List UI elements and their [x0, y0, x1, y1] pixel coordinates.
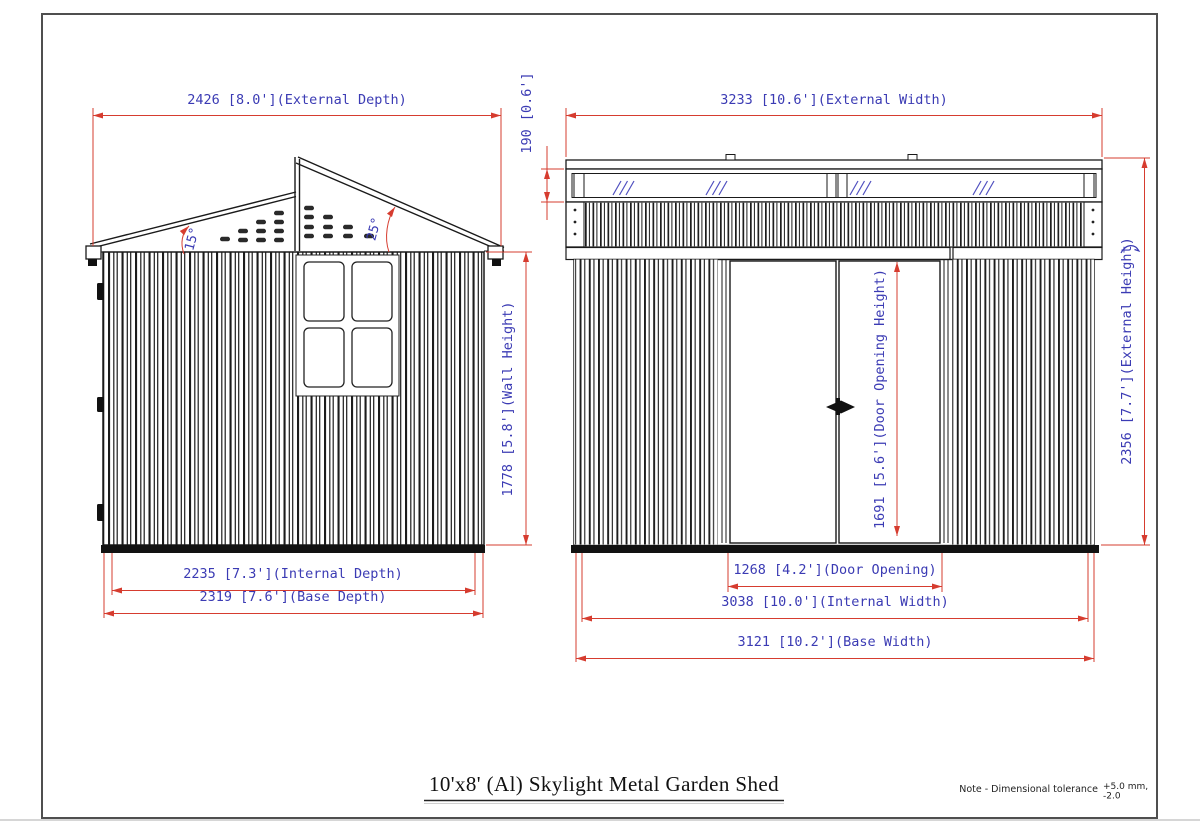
window-pane [352, 328, 392, 387]
door-leaf-right [839, 261, 940, 543]
dim-label-door-opening-width: 1268 [4.2'](Door Opening) [733, 562, 936, 578]
skylight-band [566, 169, 1102, 202]
window-pane [304, 328, 344, 387]
front-wall [574, 260, 1094, 546]
dim-label-internal-depth: 2235 [7.3'](Internal Depth) [183, 566, 402, 582]
window-pane [304, 262, 344, 321]
dim-label-external-height: 2356 [7.7'](External Height) [1119, 237, 1135, 465]
dim-label-external-width: 3233 [10.6'](External Width) [720, 92, 948, 108]
dim-base-depth: 2319 [7.6'](Base Depth) [104, 553, 483, 618]
dim-label-skylight-height: 190 [0.6'] [519, 72, 535, 153]
gable-vents [220, 206, 374, 243]
dim-external-depth: 2426 [8.0'](External Depth) [93, 92, 501, 246]
dim-roof-angle-front: 25° [364, 207, 395, 252]
dim-wall-height: 1778 [5.8'](Wall Height) [486, 252, 532, 545]
front-wall-cladding-right [952, 260, 1094, 545]
door-head-rail [566, 248, 1102, 260]
side-window [296, 255, 399, 396]
window-pane [352, 262, 392, 321]
tolerance-note: Note - Dimensional tolerance [959, 784, 1098, 795]
dim-label-external-depth: 2426 [8.0'](External Depth) [187, 92, 406, 108]
dim-external-height: 2356 [7.7'](External Height) [1101, 158, 1150, 545]
tolerance-plus: +5.0 mm, [1103, 782, 1148, 792]
front-base-rail [571, 545, 1099, 553]
drawing-title: 10'x8' (Al) Skylight Metal Garden Shed [429, 772, 779, 796]
dim-door-opening-width: 1268 [4.2'](Door Opening) [728, 553, 942, 592]
front-elevation-view [566, 155, 1139, 554]
title-block: 10'x8' (Al) Skylight Metal Garden Shed N… [424, 772, 1148, 804]
dim-label-door-opening-height: 1691 [5.6'](Door Opening Height) [872, 269, 888, 529]
front-wall-cladding-left [574, 260, 718, 545]
side-wall-cladding [103, 252, 484, 545]
side-base-rail [101, 545, 485, 553]
front-roof-cap [566, 155, 1102, 170]
side-elevation-view [86, 157, 504, 553]
door-leaf-left [730, 261, 836, 543]
dim-label-internal-width: 3038 [10.0'](Internal Width) [721, 594, 949, 610]
dim-label-base-width: 3121 [10.2'](Base Width) [737, 634, 932, 650]
shed-technical-drawing-page: 2426 [8.0'](External Depth) 2235 [7.3'](… [0, 0, 1200, 835]
front-upper-band [566, 202, 1102, 247]
drawing-canvas: 2426 [8.0'](External Depth) 2235 [7.3'](… [0, 0, 1200, 835]
dim-external-width: 3233 [10.6'](External Width) [566, 92, 1102, 157]
dim-label-wall-height: 1778 [5.8'](Wall Height) [500, 301, 516, 496]
side-roof-profile [88, 157, 504, 252]
tolerance-minus: -2.0 [1103, 792, 1121, 802]
dim-skylight-height: 190 [0.6'] [519, 72, 564, 220]
dim-roof-angle-rear: 15° [182, 226, 203, 254]
dim-label-roof-angle-front: 25° [364, 216, 385, 243]
dim-label-base-depth: 2319 [7.6'](Base Depth) [200, 589, 387, 605]
